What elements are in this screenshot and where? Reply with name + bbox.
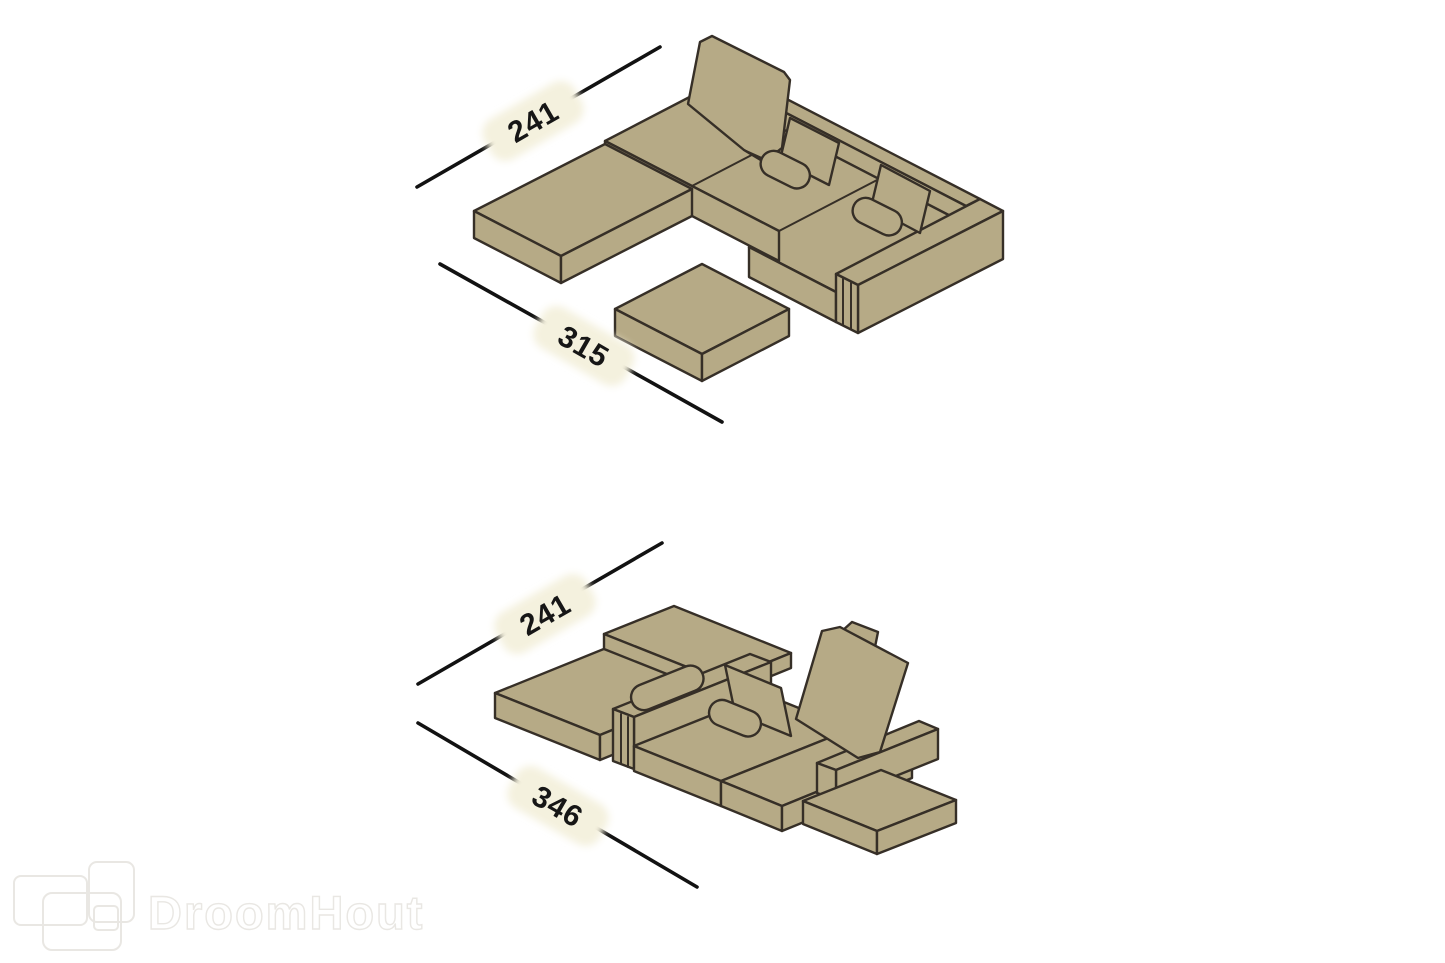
watermark-logo <box>14 862 134 950</box>
bottom-armrest-end <box>613 709 634 769</box>
watermark-logo-rect-4 <box>94 906 118 930</box>
diagram-page: 241 315 <box>0 0 1445 963</box>
sofa-diagram-top: 241 315 <box>417 36 1003 422</box>
watermark-text: DroomHout <box>148 886 424 939</box>
top-armrest-front <box>836 274 858 333</box>
watermark-logo-rect-1 <box>14 876 87 925</box>
sofa-diagram-bottom: 241 346 <box>418 543 956 887</box>
watermark: DroomHout <box>14 862 424 950</box>
diagram-canvas: 241 315 <box>0 0 1445 963</box>
